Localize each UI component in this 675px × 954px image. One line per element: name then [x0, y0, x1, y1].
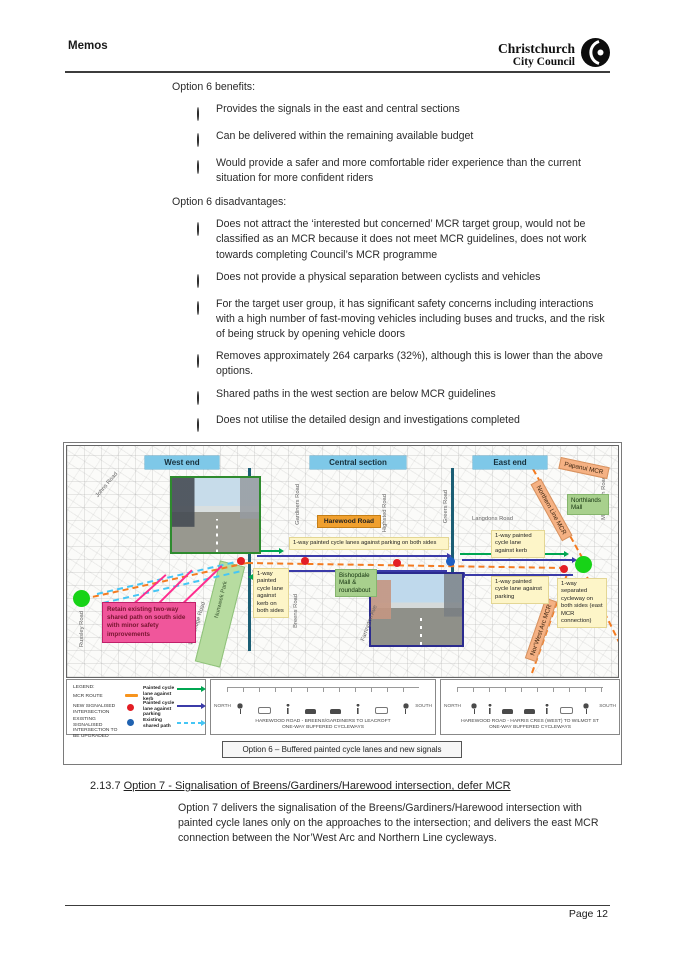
painted-parking-arrow	[257, 555, 447, 557]
list-item: Does not utilise the detailed design and…	[0, 413, 675, 433]
road-label: Highsted Road	[382, 494, 388, 532]
cross-section-diagram: NORTH SOUTH HAREWOOD ROAD - BREENS/GARDI…	[210, 679, 436, 735]
road-label: Johns Road	[95, 471, 119, 499]
circle-bullet-icon	[197, 413, 216, 433]
section-number: 2.13.7	[90, 780, 121, 792]
road-label: Greers Road	[443, 490, 449, 523]
mcr-route-line	[247, 562, 565, 569]
map-section-label-east: East end	[473, 456, 547, 469]
disadvantage-item: Does not attract the ‘interested but con…	[216, 217, 613, 263]
circle-bullet-icon	[197, 349, 216, 379]
cross-section-diagram: NORTH SOUTH HAREWOOD ROAD - HARRIS CRES …	[440, 679, 620, 735]
legend-label: Existing shared path	[143, 718, 175, 729]
harewood-road-label: Harewood Road	[317, 515, 381, 528]
callout-retain-shared-path: Retain existing two-way shared path on s…	[102, 602, 196, 643]
dimension-line	[457, 687, 603, 692]
north-label: NORTH	[444, 704, 461, 709]
new-signal-symbol	[127, 704, 134, 711]
route-end-marker	[73, 590, 90, 607]
road-label: Russley Road	[79, 611, 85, 647]
road-label: Breens Road	[293, 594, 299, 628]
north-label: NORTH	[214, 704, 231, 709]
figure-caption: Option 6 – Buffered painted cycle lanes …	[222, 741, 462, 758]
map-legend: LEGEND: MCR ROUTE NEW SIGNALISED INTERSE…	[66, 679, 206, 735]
new-signal-marker	[560, 565, 568, 573]
new-signal-marker	[393, 559, 401, 567]
circle-bullet-icon	[197, 270, 216, 290]
existing-signal-marker	[446, 557, 455, 566]
council-logo-text: Christchurch City Council	[498, 42, 575, 68]
cross-section-caption: HAREWOOD ROAD - HARRIS CRES (WEST) TO WI…	[441, 719, 619, 731]
list-item: Would provide a safer and more comfortab…	[0, 156, 675, 186]
tree-icon	[471, 703, 477, 714]
mcr-route-symbol	[125, 694, 138, 697]
document-type-label: Memos	[68, 40, 108, 52]
circle-bullet-icon	[197, 156, 216, 186]
cross-section-caption-line2: ONE-WAY BUFFERED CYCLEWAYS	[211, 725, 435, 731]
list-item: Option 6 disadvantages:	[0, 195, 675, 210]
existing-signal-symbol	[127, 719, 134, 726]
tree-icon	[403, 703, 409, 714]
legend-label: EXISTING SIGNALISED INTERSECTION TO BE U…	[73, 717, 123, 739]
callout-separated-east: 1-way separated cycleway on both sides (…	[557, 578, 607, 628]
route-end-marker	[575, 556, 592, 573]
page-number: Page 12	[569, 908, 608, 920]
bullet-icon	[152, 195, 172, 210]
painted-kerb-symbol	[177, 688, 201, 690]
legend-label: NEW SIGNALISED INTERSECTION	[73, 704, 123, 715]
cyclist-icon	[286, 704, 290, 714]
parked-car-icon	[375, 707, 388, 714]
circle-bullet-icon	[197, 217, 216, 263]
list-item: Shared paths in the west section are bel…	[0, 387, 675, 407]
disadvantage-item: Shared paths in the west section are bel…	[216, 387, 496, 407]
street-cross-section-icons	[471, 699, 589, 714]
circle-bullet-icon	[197, 387, 216, 407]
northlands-mall-label: Northlands Mall	[567, 494, 609, 515]
bullet-icon	[152, 80, 172, 95]
callout-parking-east: 1-way painted cycle lane against parking	[491, 576, 549, 604]
painted-parking-arrow	[462, 559, 572, 561]
parked-car-icon	[560, 707, 573, 714]
section-2-13-7: 2.13.7Option 7 - Signalisation of Breens…	[0, 780, 675, 847]
car-icon	[330, 709, 341, 714]
list-item: Removes approximately 264 carparks (32%)…	[0, 349, 675, 379]
benefit-item: Can be delivered within the remaining av…	[216, 129, 473, 149]
cyclist-icon	[545, 704, 549, 714]
circle-bullet-icon	[197, 102, 216, 122]
list-item: Option 7 delivers the signalisation of t…	[0, 801, 675, 847]
street-photo-central	[369, 572, 464, 647]
benefit-item: Would provide a safer and more comfortab…	[216, 156, 613, 186]
list-item: Does not provide a physical separation b…	[0, 270, 675, 290]
map-section-label-west: West end	[145, 456, 219, 469]
legend-label: Painted cycle lane against parking	[143, 701, 175, 718]
papanui-mcr-label: Papanui MCR	[558, 457, 609, 479]
council-emblem-icon	[581, 38, 610, 72]
list-item: For the target user group, it has signif…	[0, 297, 675, 343]
street-photo-west	[170, 476, 261, 554]
tree-icon	[237, 703, 243, 714]
new-signal-marker	[237, 557, 245, 565]
bishopdale-mall-label: Bishopdale Mall & roundabout	[335, 569, 377, 597]
list-item: Option 6 benefits:	[0, 80, 675, 95]
benefit-item: Provides the signals in the east and cen…	[216, 102, 460, 122]
car-icon	[524, 709, 535, 714]
road-label: Gardiners Road	[295, 484, 301, 525]
disadvantage-item: Does not provide a physical separation b…	[216, 270, 540, 290]
road-label: Langdons Road	[472, 516, 513, 522]
callout-kerb-both-sides: 1-way painted cycle lane against kerb on…	[253, 568, 289, 618]
new-signal-marker	[301, 557, 309, 565]
callout-parking-both-sides: 1-way painted cycle lanes against parkin…	[289, 537, 449, 550]
option6-benefits-heading: Option 6 benefits:	[172, 80, 255, 95]
footer-divider	[65, 905, 610, 906]
south-label: SOUTH	[599, 704, 616, 709]
list-item: Can be delivered within the remaining av…	[0, 129, 675, 149]
legend-label: MCR ROUTE	[73, 694, 125, 700]
street-cross-section-icons	[237, 699, 409, 714]
cyclist-icon	[488, 704, 492, 714]
bullet-icon	[163, 801, 178, 847]
circle-bullet-icon	[197, 297, 216, 343]
memo-body: Option 6 benefits: Provides the signals …	[0, 80, 675, 467]
map-section-label-central: Central section	[310, 456, 406, 469]
section-heading: 2.13.7Option 7 - Signalisation of Breens…	[90, 780, 675, 792]
disadvantage-item: Does not utilise the detailed design and…	[216, 413, 520, 433]
callout-kerb-east: 1-way painted cycle lane against kerb	[491, 530, 545, 558]
cross-section-caption: HAREWOOD ROAD - BREENS/GARDINERS TO LEAC…	[211, 719, 435, 731]
parked-car-icon	[258, 707, 271, 714]
painted-parking-symbol	[177, 705, 201, 707]
south-label: SOUTH	[415, 704, 432, 709]
header-divider	[65, 71, 610, 73]
list-item: Provides the signals in the east and cen…	[0, 102, 675, 122]
shared-path-symbol	[177, 722, 201, 724]
option6-map-figure: Nunweek Park	[63, 442, 622, 765]
tree-icon	[583, 703, 589, 714]
route-map: Nunweek Park	[66, 445, 619, 678]
option7-description: Option 7 delivers the signalisation of t…	[178, 801, 612, 847]
cross-section-caption-line2: ONE-WAY BUFFERED CYCLEWAYS	[441, 725, 619, 731]
list-item: Does not attract the ‘interested but con…	[0, 217, 675, 263]
road-label: Nunweek Park	[214, 581, 229, 619]
cyclist-icon	[356, 704, 360, 714]
option6-disadvantages-heading: Option 6 disadvantages:	[172, 195, 286, 210]
disadvantage-item: For the target user group, it has signif…	[216, 297, 613, 343]
council-logo-line2: City Council	[498, 56, 575, 68]
car-icon	[305, 709, 316, 714]
section-title: Option 7 - Signalisation of Breens/Gardi…	[124, 780, 511, 792]
council-logo: Christchurch City Council	[498, 38, 610, 72]
norwest-arc-mcr-label: Nor’West Arc MCR	[525, 598, 557, 662]
legend-title: LEGEND:	[73, 685, 94, 691]
dimension-line	[227, 687, 419, 692]
disadvantage-item: Removes approximately 264 carparks (32%)…	[216, 349, 613, 379]
council-logo-line1: Christchurch	[498, 42, 575, 56]
car-icon	[502, 709, 513, 714]
circle-bullet-icon	[197, 129, 216, 149]
